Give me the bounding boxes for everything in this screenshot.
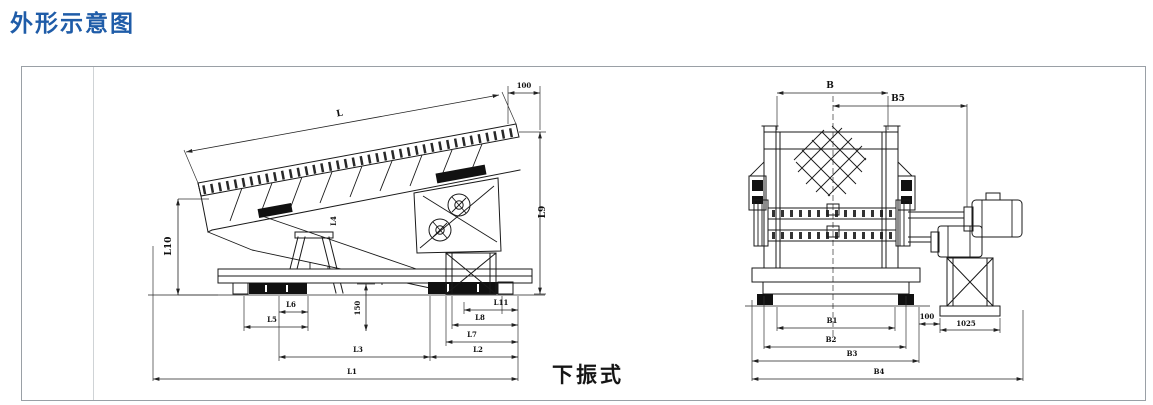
drive-shafts bbox=[908, 212, 964, 242]
dim-label-B3: B3 bbox=[847, 349, 858, 358]
dim-label-L10: L10 bbox=[164, 237, 174, 256]
foot-block-right bbox=[498, 282, 513, 294]
dim-label-L9: L9 bbox=[538, 206, 548, 219]
side-view-drawing bbox=[148, 124, 545, 295]
technical-drawing: L 100 L9 L10 L4 150 L6 L5 L11 L8 L7 bbox=[0, 0, 1153, 405]
dim-label-L: L bbox=[336, 108, 345, 119]
page: 外形示意图 下振式 bbox=[0, 0, 1153, 405]
dim-label-150: 150 bbox=[353, 301, 362, 316]
screen-body-posts bbox=[762, 126, 900, 268]
front-base-upper bbox=[752, 268, 920, 282]
dim-label-B: B bbox=[826, 81, 834, 91]
dim-label-100-gap: 100 bbox=[920, 312, 935, 321]
shaft-tubes bbox=[768, 208, 896, 241]
dim-label-B2: B2 bbox=[826, 335, 837, 344]
motor-stand bbox=[947, 258, 993, 306]
dim-label-L6: L6 bbox=[286, 300, 296, 309]
dim-label-L2: L2 bbox=[473, 345, 483, 354]
dim-label-B4: B4 bbox=[874, 367, 885, 376]
front-view-drawing bbox=[745, 96, 1022, 336]
dim-label-L5: L5 bbox=[267, 315, 277, 324]
dim-label-L8: L8 bbox=[475, 313, 485, 322]
dim-label-L3: L3 bbox=[353, 345, 363, 354]
dim-label-B5: B5 bbox=[891, 94, 905, 104]
deck-pad-right bbox=[436, 165, 487, 184]
base-pad-left bbox=[249, 283, 307, 294]
mesh-symbol bbox=[794, 126, 866, 196]
dim-label-L4: L4 bbox=[329, 216, 338, 226]
dim-label-L11: L11 bbox=[494, 298, 509, 307]
motor-lower bbox=[938, 226, 982, 257]
dim-label-B1: B1 bbox=[827, 316, 838, 325]
dim-label-1025: 1025 bbox=[956, 319, 976, 328]
motor-upper bbox=[972, 200, 1022, 237]
screen-body-frame bbox=[764, 132, 898, 268]
motor-stand-base bbox=[940, 306, 1000, 316]
dim-label-100-top: 100 bbox=[517, 81, 532, 90]
front-pad-left bbox=[757, 294, 773, 305]
dim-label-L1: L1 bbox=[347, 367, 357, 376]
front-base-lower bbox=[763, 282, 909, 294]
foot-block-left bbox=[233, 283, 248, 294]
base-pad-right bbox=[428, 282, 498, 294]
dim-label-L7: L7 bbox=[467, 330, 477, 339]
